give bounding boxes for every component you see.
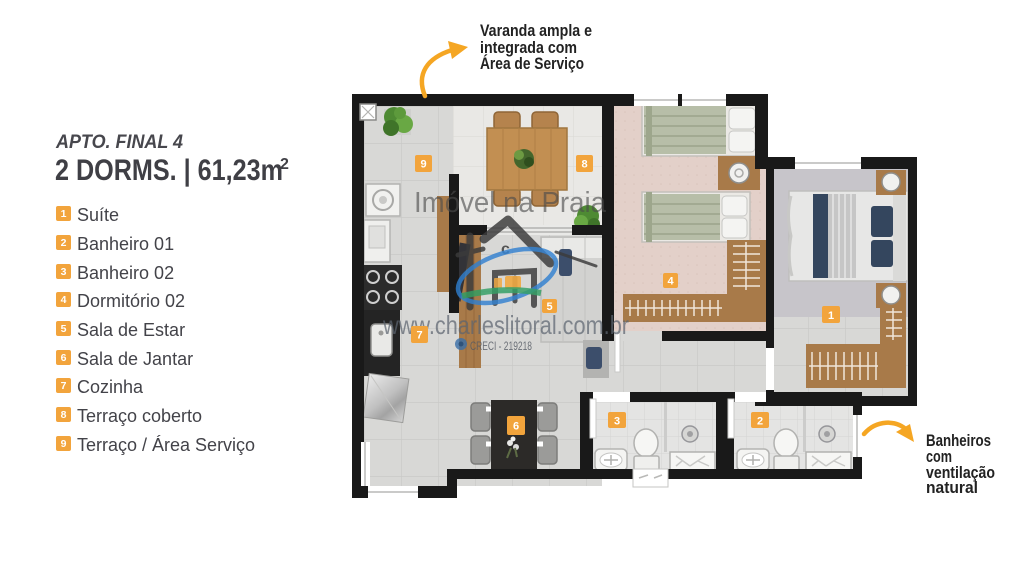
svg-text:CRECI - 219218: CRECI - 219218	[470, 339, 532, 353]
svg-text:Dormitório 02: Dormitório 02	[77, 291, 185, 311]
svg-text:9: 9	[420, 159, 426, 171]
svg-text:Terraço coberto: Terraço coberto	[77, 406, 202, 426]
svg-text:5: 5	[61, 323, 67, 335]
svg-text:Sala de Estar: Sala de Estar	[77, 320, 185, 340]
svg-text:2 DORMS. | 61,23m: 2 DORMS. | 61,23m	[55, 154, 283, 187]
svg-text:1: 1	[61, 208, 67, 220]
svg-text:Área de Serviço: Área de Serviço	[480, 54, 584, 73]
svg-text:7: 7	[61, 380, 67, 392]
svg-text:Imóvel na Praia: Imóvel na Praia	[414, 187, 607, 219]
svg-text:3: 3	[614, 416, 620, 428]
svg-text:9: 9	[61, 438, 67, 450]
svg-text:4: 4	[667, 276, 674, 288]
svg-text:Banheiro 01: Banheiro 01	[77, 234, 174, 254]
svg-text:3: 3	[61, 266, 67, 278]
svg-text:2: 2	[757, 416, 763, 428]
svg-text:8: 8	[581, 159, 587, 171]
svg-text:Terraço / Área Serviço: Terraço / Área Serviço	[77, 435, 255, 455]
svg-text:8: 8	[61, 409, 67, 421]
svg-text:2: 2	[61, 237, 67, 249]
svg-text:APTO. FINAL 4: APTO. FINAL 4	[55, 132, 183, 153]
svg-text:Suíte: Suíte	[77, 205, 119, 225]
svg-text:2: 2	[280, 156, 289, 173]
svg-text:Cozinha: Cozinha	[77, 377, 144, 397]
svg-text:6: 6	[61, 352, 67, 364]
svg-text:Banheiro 02: Banheiro 02	[77, 263, 174, 283]
svg-text:natural: natural	[926, 479, 978, 497]
svg-text:Sala de Jantar: Sala de Jantar	[77, 349, 193, 369]
svg-text:4: 4	[61, 294, 67, 306]
svg-text:7: 7	[416, 330, 422, 342]
svg-text:5: 5	[546, 301, 552, 313]
svg-text:6: 6	[513, 421, 519, 433]
svg-text:1: 1	[828, 310, 834, 322]
